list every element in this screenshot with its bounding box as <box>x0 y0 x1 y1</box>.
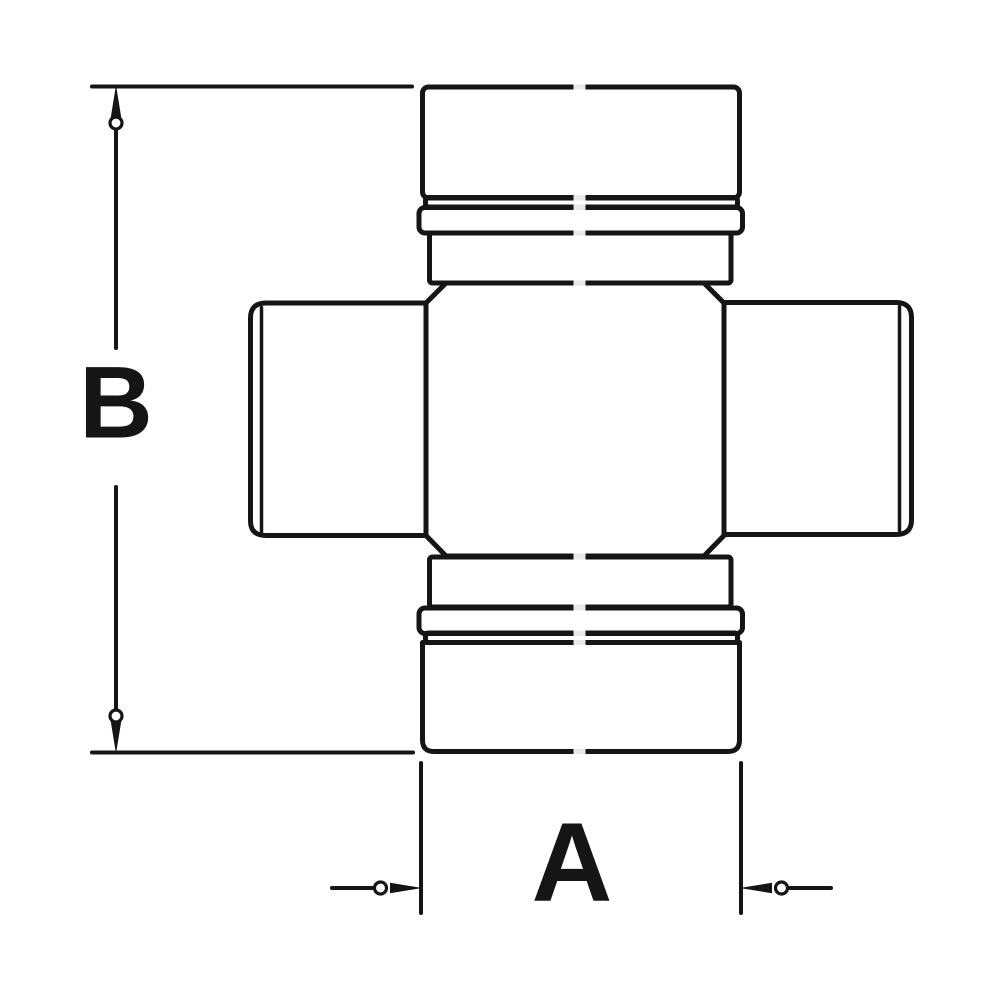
arrow-circle-tail <box>776 882 788 894</box>
left-bearing-cap <box>251 303 427 536</box>
dimension-b: B <box>79 87 413 753</box>
dimension-a: A <box>332 763 831 925</box>
dim-b-arrow-down-icon <box>110 710 122 751</box>
dim-a-arrow-right-icon <box>332 882 419 894</box>
arrow-tip <box>111 721 121 751</box>
arrow-circle-tail <box>110 117 122 129</box>
dimension-b-label: B <box>79 346 153 460</box>
arrow-circle-tail <box>375 882 387 894</box>
drawing-canvas: B A <box>0 0 1000 1000</box>
arrow-tip <box>743 883 772 892</box>
arrow-circle-tail <box>110 710 122 722</box>
ujoint-dimension-diagram: B A <box>0 0 1000 1000</box>
arrow-tip <box>391 883 420 892</box>
dim-b-arrow-up-icon <box>110 88 122 129</box>
right-bearing-cap <box>724 303 912 535</box>
scan-gap-stripe <box>574 80 586 760</box>
dimension-a-label: A <box>532 800 613 925</box>
arrow-tip <box>111 88 121 118</box>
ujoint-cross-part <box>251 80 912 760</box>
dim-a-arrow-left-icon <box>743 882 831 894</box>
